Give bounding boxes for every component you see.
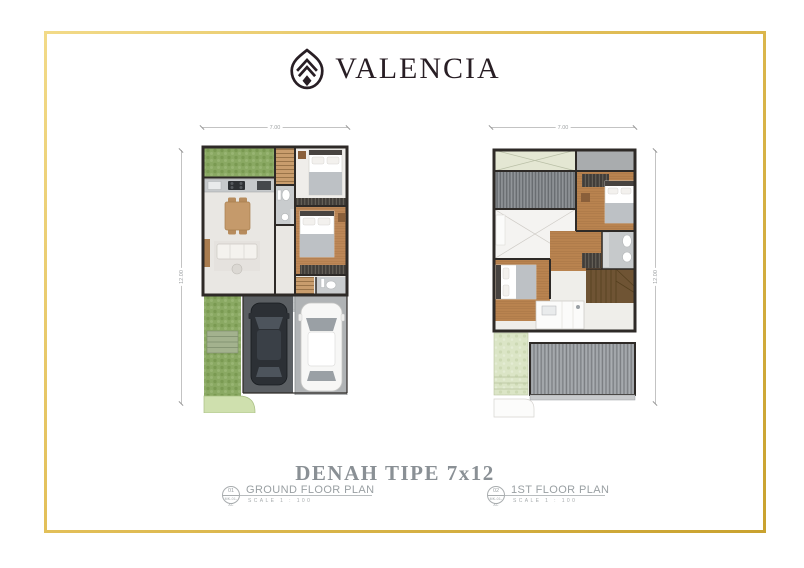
ff-main-roof <box>530 343 635 400</box>
gf-entry-steps <box>296 277 314 295</box>
ff-bathroom <box>602 231 635 269</box>
ff-skylight-panel <box>494 150 576 171</box>
plan-label: 1ST FLOOR PLAN <box>511 484 609 496</box>
valencia-logo-icon <box>289 48 325 90</box>
first-floor-plan-drawing <box>490 141 640 423</box>
gf-bedroom-1 <box>296 148 346 206</box>
ff-dimension-width-label: 7.00 <box>556 125 571 131</box>
gf-dimension-width: 7.00 <box>202 127 348 128</box>
ground-floor-caption: 01 MK-01-AC GROUND FLOOR PLAN SCALE 1 : … <box>222 484 372 510</box>
ff-kitchen-counter <box>536 301 584 329</box>
brand-name: VALENCIA <box>335 54 500 84</box>
gf-carport-car <box>243 296 293 393</box>
ff-dimension-height: 12.00 <box>655 150 656 404</box>
plan-scale: SCALE 1 : 100 <box>248 498 312 504</box>
poster-canvas: VALENCIA 7.00 12.00 <box>0 0 804 568</box>
ff-canopy <box>494 399 534 417</box>
gf-bathroom <box>276 185 295 225</box>
gf-dimension-width-label: 7.00 <box>268 125 283 131</box>
ff-top-deck <box>576 150 635 171</box>
ff-planter <box>494 333 528 395</box>
ff-stairs <box>586 269 635 303</box>
type-title: DENAH TIPE 7x12 <box>0 461 790 486</box>
ff-dimension-width: 7.00 <box>491 127 635 128</box>
gf-bedroom-2 <box>296 206 346 275</box>
ff-bedroom-2 <box>576 171 635 231</box>
ff-utility-vent <box>582 253 601 268</box>
sheet-code: MK-01-AC <box>488 496 504 508</box>
first-floor-caption: 02 MK-01-AC 1ST FLOOR PLAN SCALE 1 : 100 <box>487 484 605 510</box>
gf-driveway-car <box>295 296 347 395</box>
plan-scale: SCALE 1 : 100 <box>513 498 577 504</box>
gf-guest-toilet <box>316 277 346 295</box>
sheet-code: MK-01-AC <box>223 496 239 508</box>
plan-number: 01 <box>223 487 239 496</box>
gf-dimension-height: 12.00 <box>181 150 182 404</box>
plan-number: 02 <box>488 487 504 496</box>
plan-number-badge: 02 MK-01-AC <box>487 486 505 504</box>
gf-kitchen-counter <box>204 179 275 192</box>
ff-front-roof <box>494 171 576 209</box>
gf-garden-top <box>204 148 275 177</box>
gf-dimension-height-label: 12.00 <box>179 268 185 286</box>
plan-label: GROUND FLOOR PLAN <box>246 484 374 496</box>
ff-dimension-height-label: 12.00 <box>653 268 659 286</box>
gf-stairs <box>276 148 295 185</box>
brand-header: VALENCIA <box>0 48 790 90</box>
gf-dining-table <box>225 198 250 235</box>
ground-floor-plan-drawing <box>199 141 351 413</box>
plan-number-badge: 01 MK-01-AC <box>222 486 240 504</box>
